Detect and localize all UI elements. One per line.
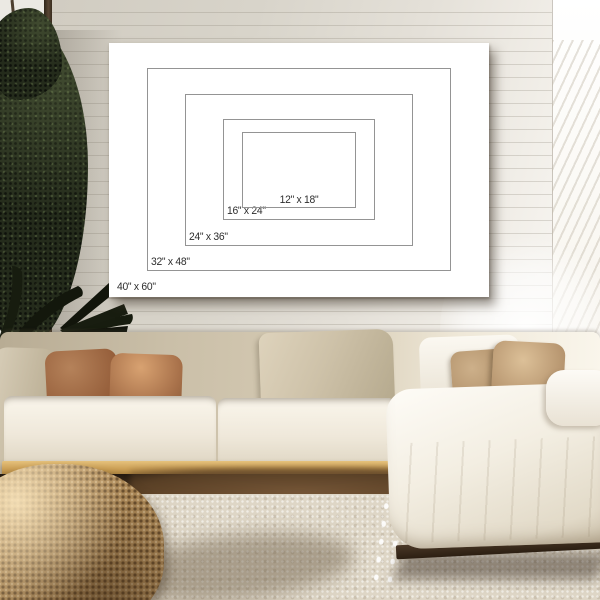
chaise-fabric-wrinkles (386, 436, 600, 543)
size-label-32x48: 32" x 48" (151, 256, 190, 268)
canvas-size-chart: 32" x 48" 24" x 36" 16" x 24" 12" x 18" … (109, 43, 489, 297)
size-label-24x36: 24" x 36" (189, 231, 228, 243)
seat-cushion-left (4, 396, 216, 466)
size-rect-12x18: 12" x 18" (242, 132, 356, 208)
living-room-scene: 32" x 48" 24" x 36" 16" x 24" 12" x 18" … (0, 0, 600, 600)
size-label-12x18: 12" x 18" (280, 194, 319, 206)
white-bolster-cushion (546, 370, 600, 426)
size-label-40x60: 40" x 60" (117, 281, 156, 293)
seat-cushion-middle (218, 398, 396, 468)
